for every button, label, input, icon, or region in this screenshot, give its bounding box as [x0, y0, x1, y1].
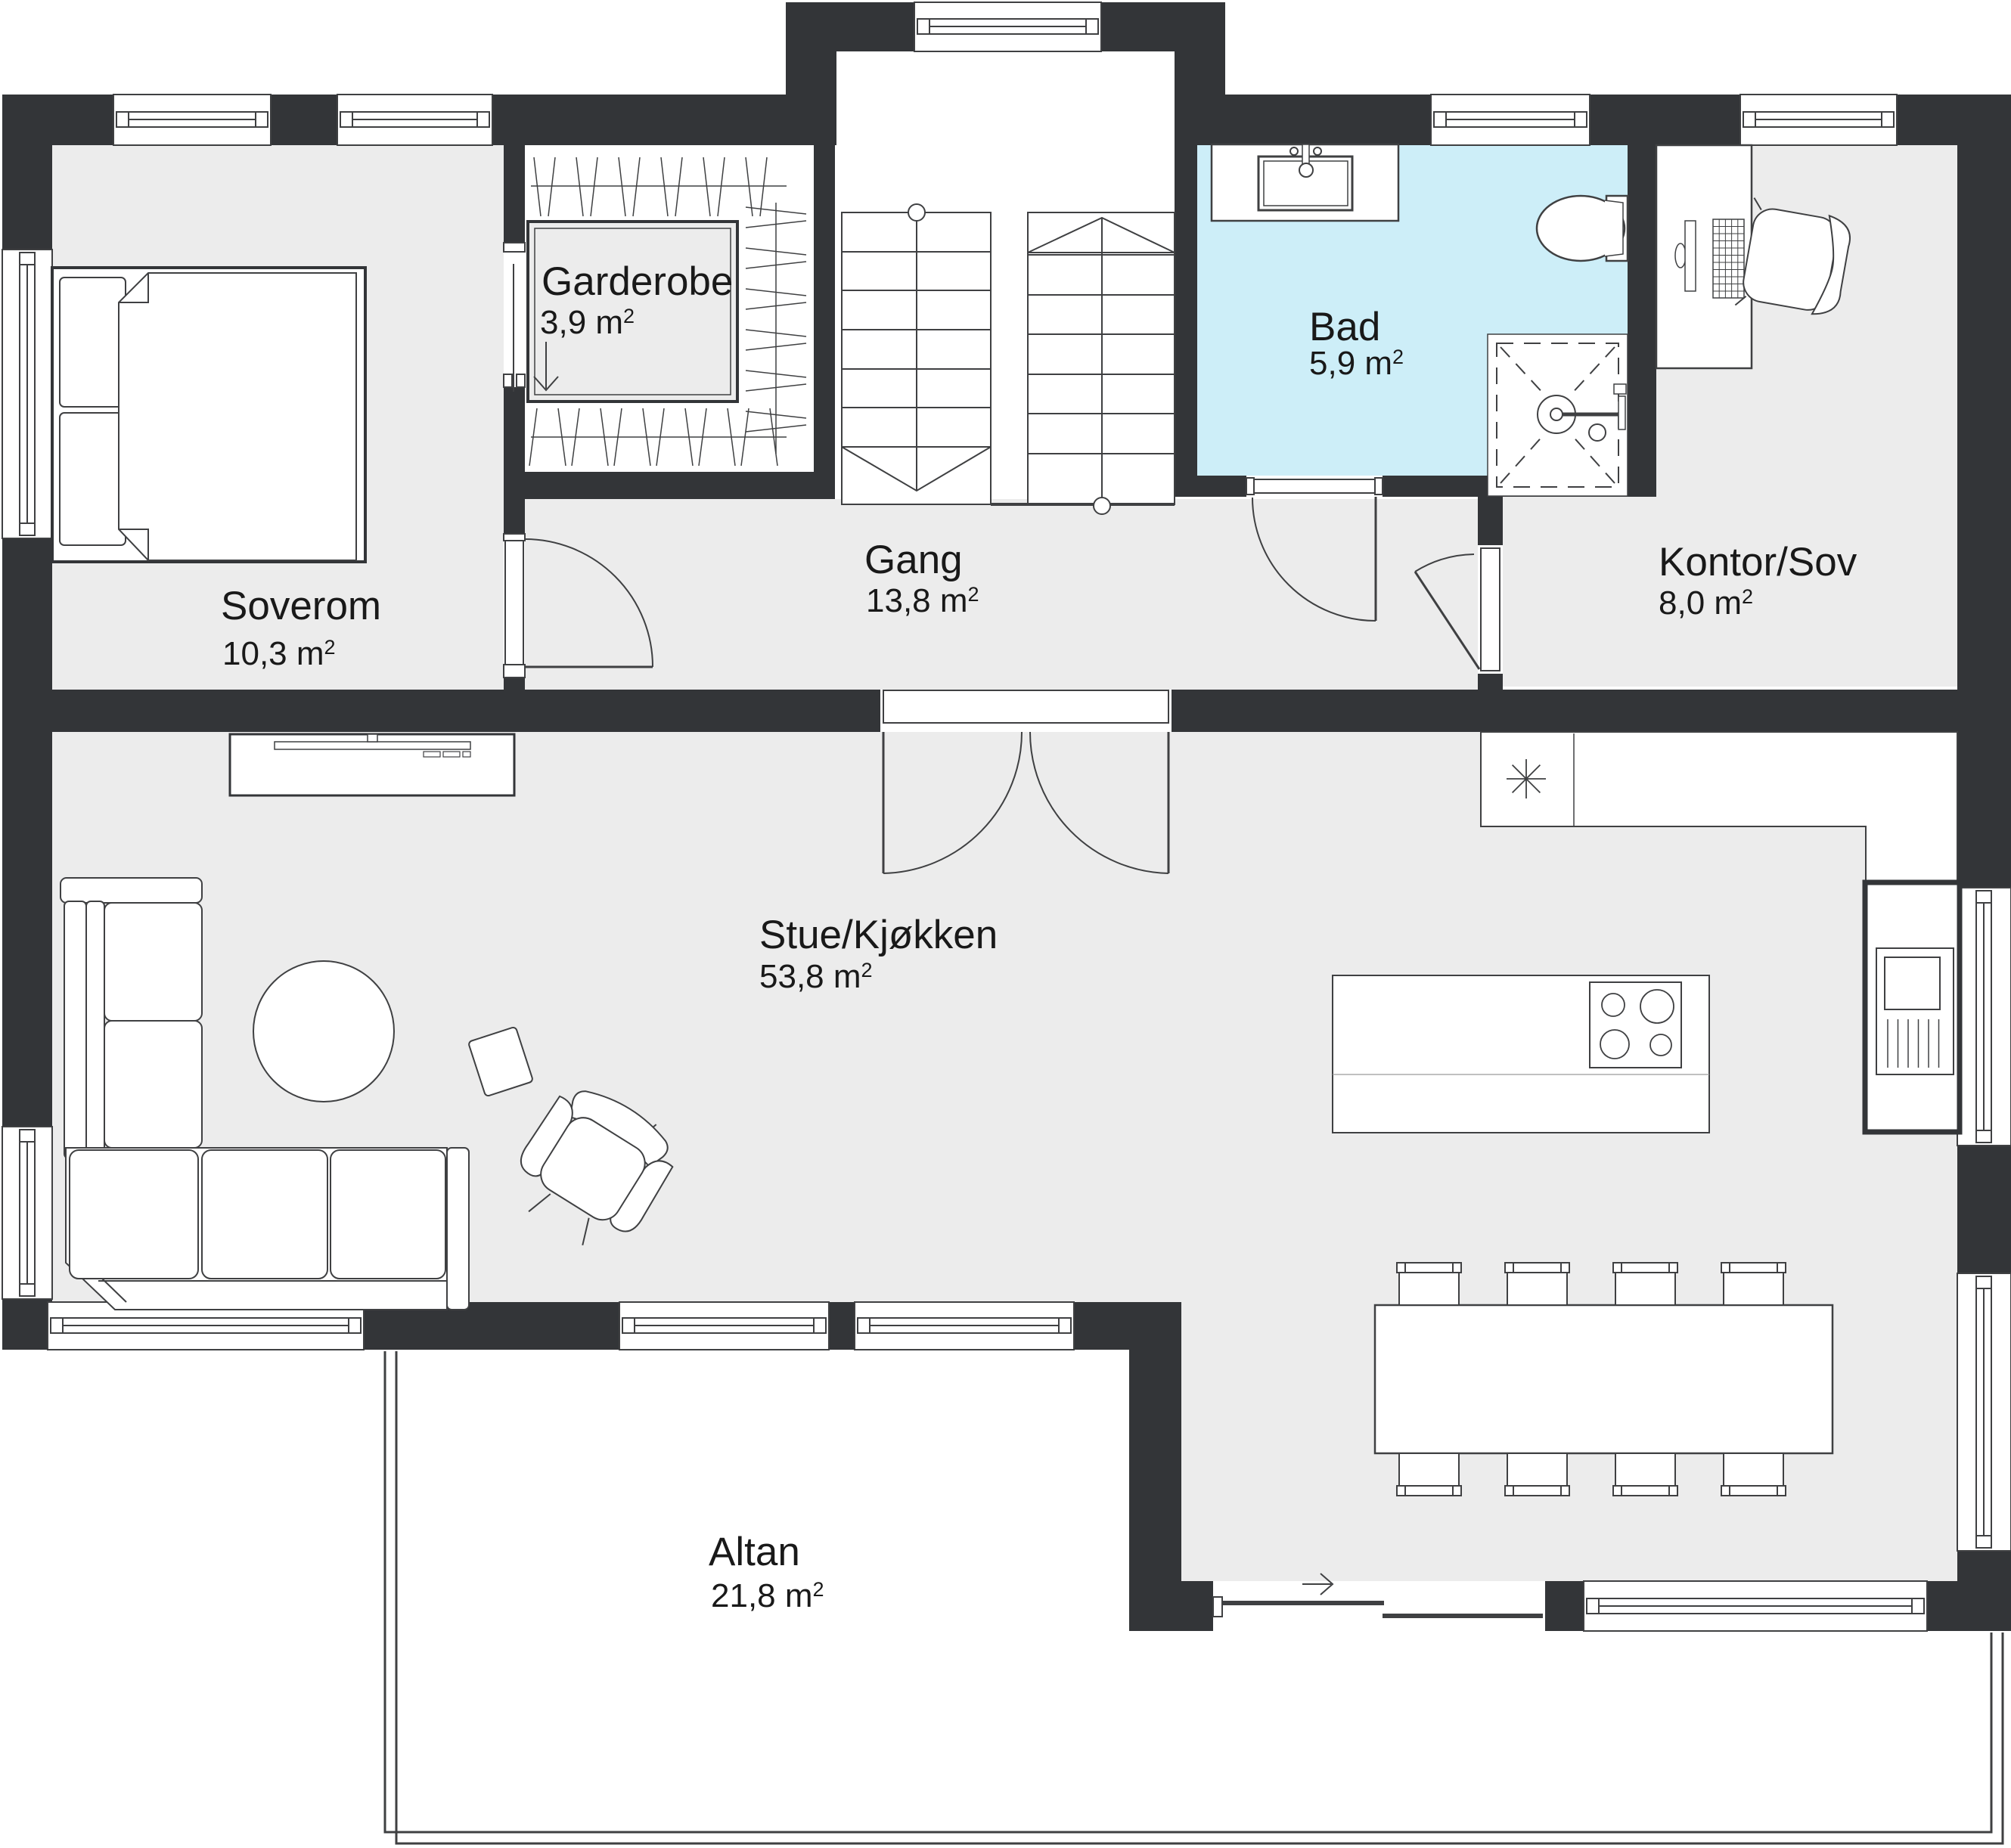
svg-text:53,8 m2: 53,8 m2 [759, 958, 873, 995]
svg-text:Soverom: Soverom [221, 584, 381, 628]
svg-text:Altan: Altan [709, 1530, 800, 1574]
svg-text:Gang: Gang [864, 538, 963, 582]
svg-text:21,8 m2: 21,8 m2 [711, 1577, 824, 1614]
svg-text:Garderobe: Garderobe [542, 259, 733, 304]
svg-text:8,0 m2: 8,0 m2 [1659, 584, 1753, 622]
svg-text:Stue/Kjøkken: Stue/Kjøkken [759, 913, 998, 957]
svg-text:Kontor/Sov: Kontor/Sov [1659, 540, 1857, 584]
svg-text:13,8 m2: 13,8 m2 [866, 582, 979, 619]
svg-text:5,9 m2: 5,9 m2 [1309, 345, 1404, 382]
svg-text:3,9 m2: 3,9 m2 [540, 304, 635, 341]
svg-text:Bad: Bad [1309, 305, 1380, 349]
svg-text:10,3 m2: 10,3 m2 [222, 635, 336, 672]
